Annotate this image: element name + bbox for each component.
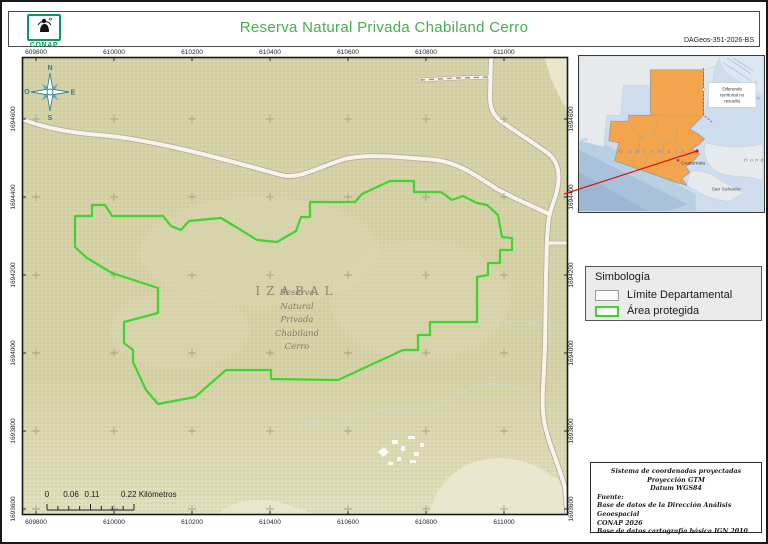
san-salvador-label: San Salvador: [712, 186, 742, 192]
capital-city-marker: [677, 159, 679, 161]
coordinate-label: 611000: [479, 518, 529, 528]
coordinate-label: 1694200: [9, 250, 19, 300]
compass-hub: [47, 89, 53, 95]
reserve-name-line: Natural: [217, 301, 377, 315]
depth-label: 221: [580, 138, 587, 142]
legend: Simbología Límite Departamental Área pro…: [585, 266, 762, 321]
source-line: Base de datos de la Dirección Análisis G…: [597, 502, 755, 519]
reserve-name-line: Cerro: [217, 341, 377, 355]
dispute-note-line: Diferendo: [722, 87, 742, 92]
coordinate-label: 1693600: [567, 484, 577, 534]
source-line: Fuente:: [597, 494, 755, 503]
honduras-label: Honduras: [744, 158, 763, 164]
coordinate-label: 610800: [401, 48, 451, 58]
coordinate-label: 610400: [245, 518, 295, 528]
compass-e-label: E: [71, 90, 76, 97]
coordinate-label: 1693800: [9, 406, 19, 456]
dispute-note-line: territorial no: [720, 92, 744, 97]
coordinate-label: 1694600: [9, 94, 19, 144]
page-title: Reserva Natural Privada Chabiland Cerro: [9, 19, 759, 36]
compass-o-label: O: [24, 89, 30, 96]
coordinate-label: 1694400: [9, 172, 19, 222]
scale-bar: [47, 504, 134, 510]
coordinate-label: 610800: [401, 518, 451, 528]
legend-label: Área protegida: [627, 305, 699, 317]
coordinate-label: 610000: [89, 48, 139, 58]
coordinate-label: 1694000: [9, 328, 19, 378]
document-code: DAGeos-351-2026-BS: [684, 37, 754, 44]
map-document-page: CONAP Reserva Natural Privada Chabiland …: [0, 0, 768, 544]
coordinate-label: 610000: [89, 518, 139, 528]
coordinate-label: 610400: [245, 48, 295, 58]
coordinate-label: 1694200: [567, 250, 577, 300]
coordinate-label: 1694000: [567, 328, 577, 378]
coordinate-label: 611000: [479, 48, 529, 58]
coordinate-label: 610600: [323, 518, 373, 528]
coordinate-label: 610200: [167, 518, 217, 528]
coordinate-label: 1694400: [567, 172, 577, 222]
reserve-name-line: Privada: [217, 314, 377, 328]
dispute-note-line: resuelto: [724, 98, 741, 103]
legend-swatch-protected-area: [595, 306, 619, 317]
locator-map-layers: 221 G Honda G u a t e m a l a Guatemala …: [579, 56, 763, 211]
source-line: Base de datos cartografía básica IGN 201…: [597, 528, 755, 537]
header: CONAP Reserva Natural Privada Chabiland …: [8, 11, 760, 47]
coordinate-label: 610200: [167, 48, 217, 58]
projection-line: Proyección GTM: [597, 477, 755, 486]
coordinate-label: 609800: [11, 48, 61, 58]
scale-label-mid2: 0.11: [82, 490, 102, 499]
building-footprints: [378, 436, 424, 465]
coordinate-label: 1693600: [9, 484, 19, 534]
scale-label-end: 0.22 Kilómetros: [121, 490, 177, 499]
compass-rose: N E O S: [24, 65, 75, 122]
projection-line: Sistema de coordenadas proyectadas: [597, 468, 755, 477]
conap-logo-label: CONAP: [21, 42, 67, 49]
dispute-note: Diferendo territorial no resuelto: [709, 83, 756, 108]
department-label: IZABAL: [217, 284, 377, 298]
legend-item-departmental: Límite Departamental: [595, 287, 761, 303]
legend-item-protected-area: Área protegida: [595, 303, 761, 319]
coordinate-label: 1694600: [567, 94, 577, 144]
source-info-box: Sistema de coordenadas proyectadas Proye…: [590, 462, 762, 533]
capital-city-label: Guatemala: [681, 161, 705, 167]
legend-swatch-departmental: [595, 290, 619, 301]
reserve-name-line: Chabiland: [217, 328, 377, 342]
legend-label: Límite Departamental: [627, 289, 732, 301]
projection-line: Datum WGS84: [597, 485, 755, 494]
coordinate-label: 1693800: [567, 406, 577, 456]
dispute-marker: [702, 88, 705, 91]
locator-map: 221 G Honda G u a t e m a l a Guatemala …: [578, 55, 765, 213]
scale-label-mid1: 0.06: [61, 490, 81, 499]
coordinate-label: 610600: [323, 48, 373, 58]
legend-title: Simbología: [595, 271, 761, 283]
scale-label-zero: 0: [43, 490, 51, 499]
country-label: G u a t e m a l a: [619, 149, 686, 155]
source-line: CONAP 2026: [597, 520, 755, 529]
compass-s-label: S: [48, 115, 53, 122]
compass-n-label: N: [47, 65, 52, 72]
